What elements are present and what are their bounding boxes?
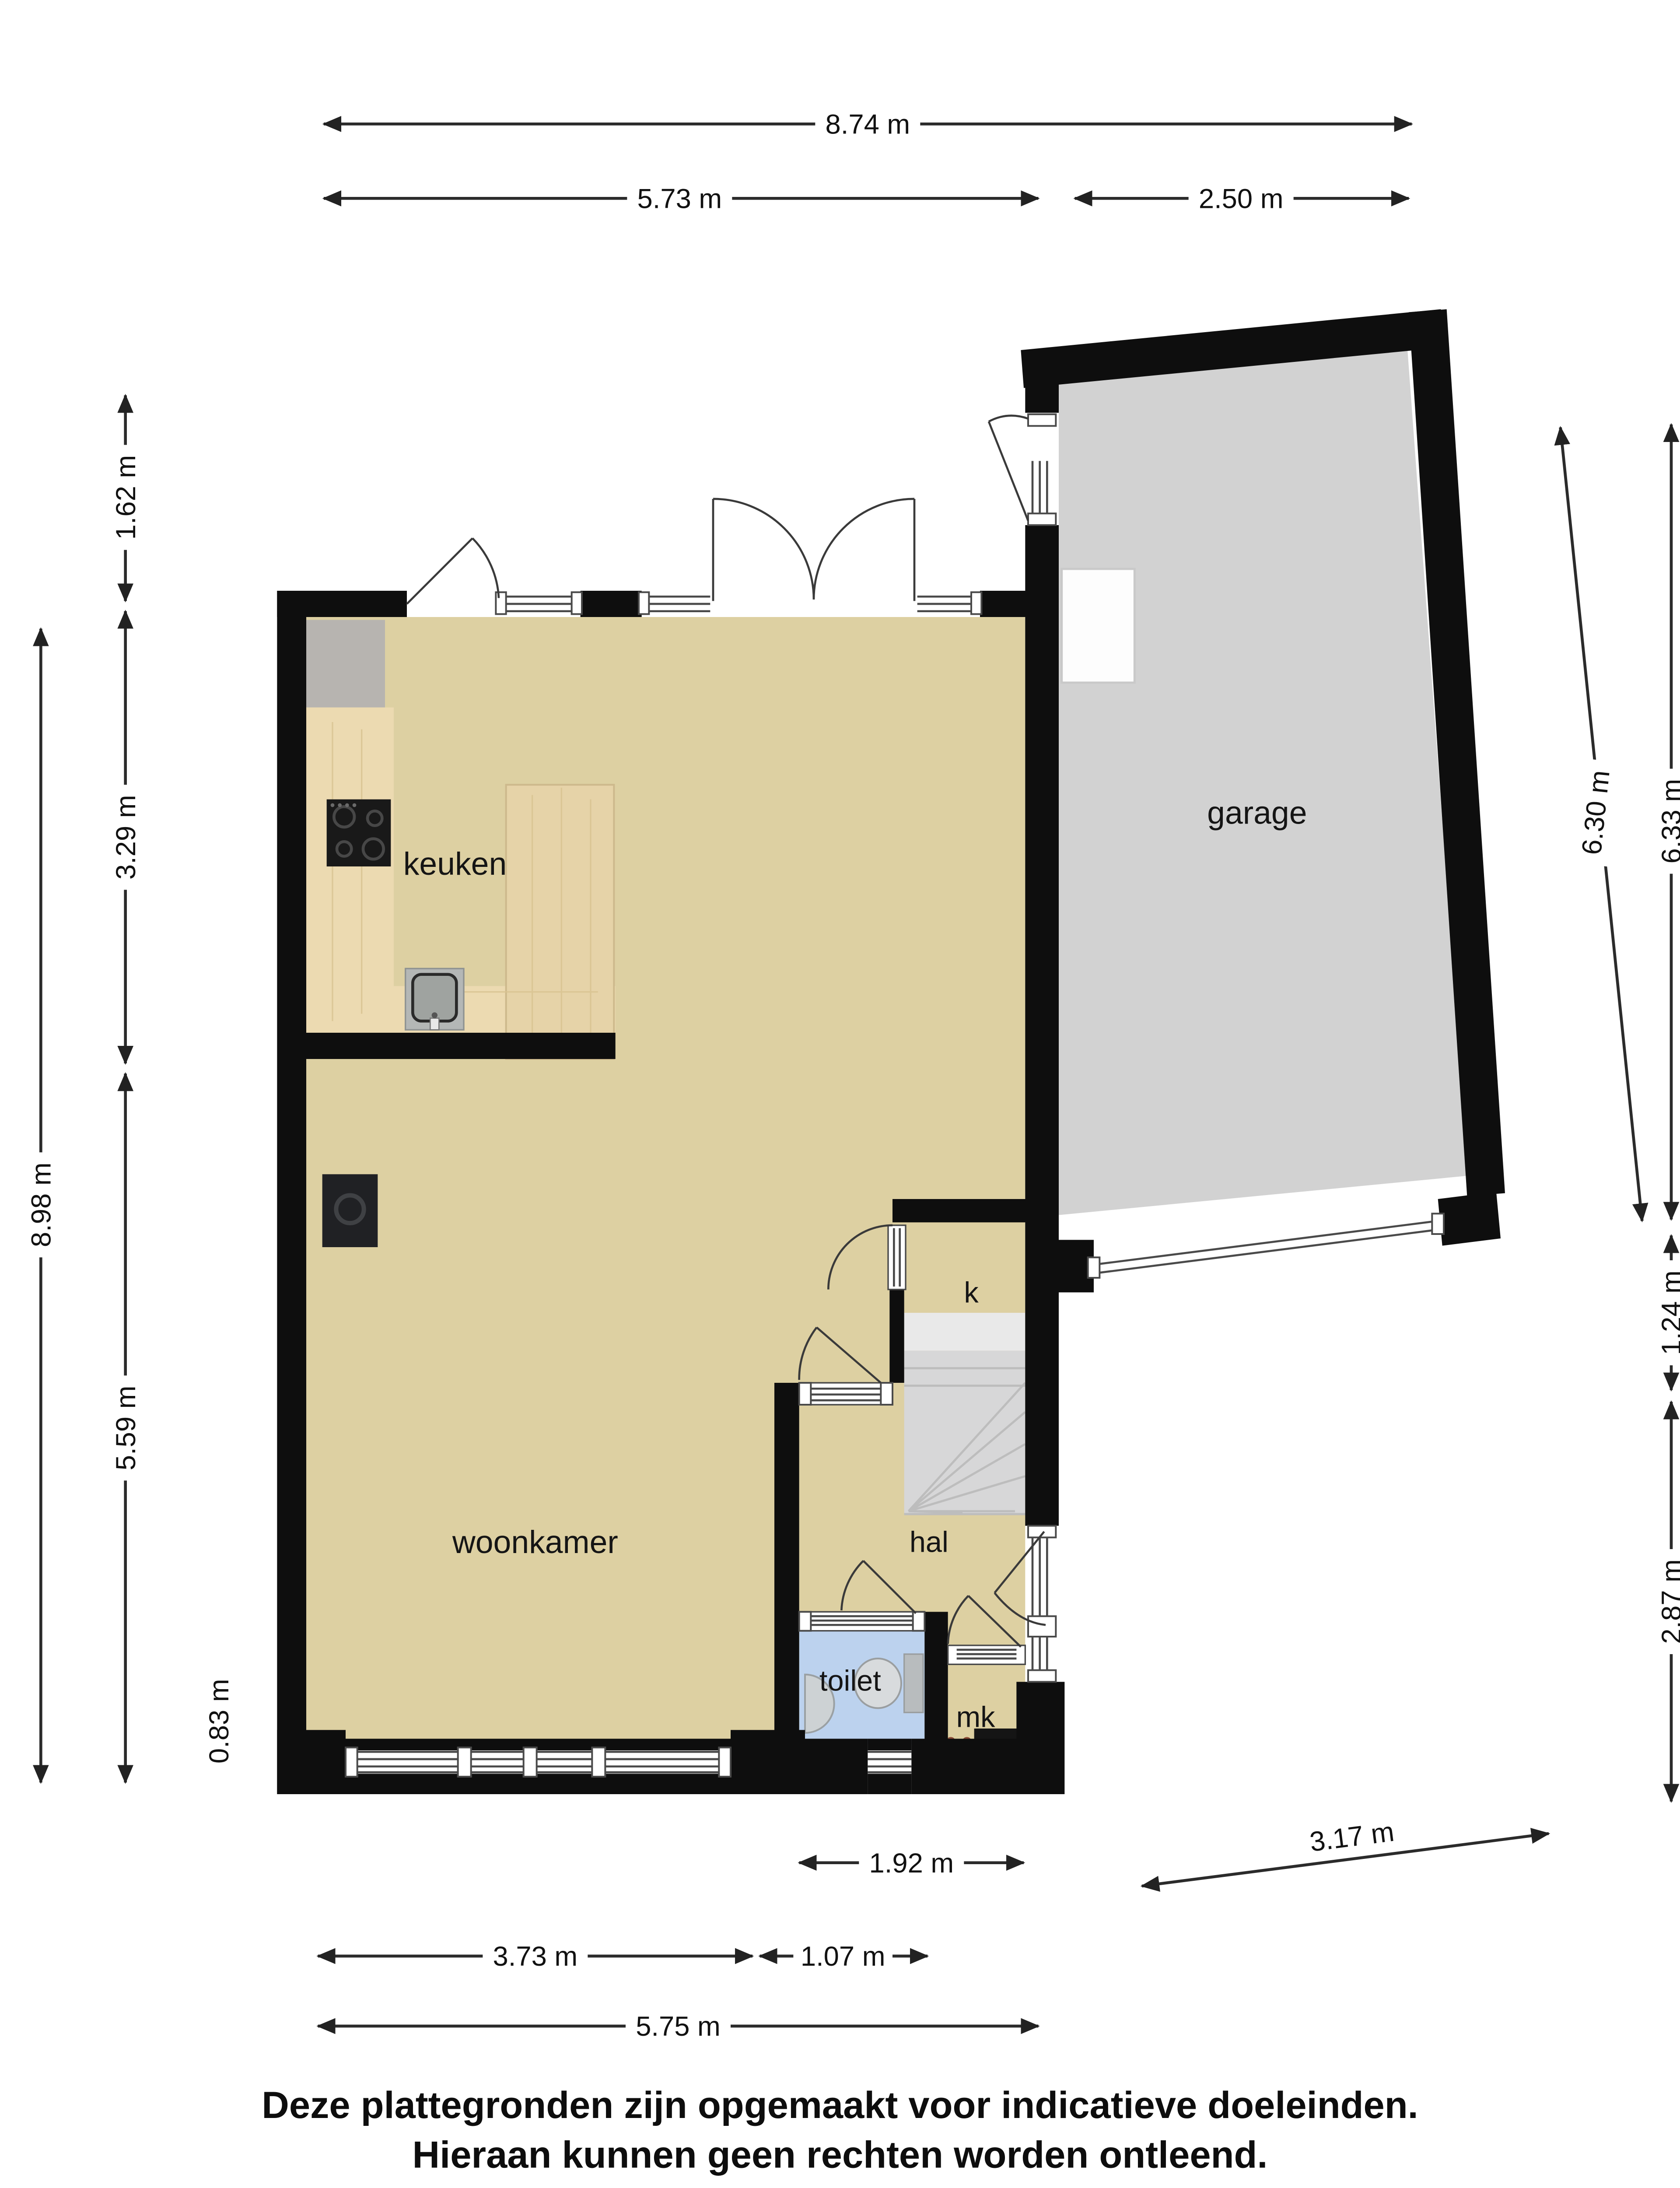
fridge [306, 620, 385, 708]
svg-text:2.50 m: 2.50 m [1199, 184, 1284, 214]
wall-garage-pier-left [1044, 1240, 1094, 1292]
wall-kitchen-divider [303, 1033, 615, 1059]
svg-text:8.98 m: 8.98 m [26, 1163, 56, 1248]
room-label-hal: hal [910, 1526, 948, 1559]
room-label-toilet: toilet [819, 1665, 881, 1697]
wall-bottom-c [805, 1739, 868, 1794]
wall-bottom-toiletwin-top [868, 1739, 911, 1750]
dim-bottom-small: 1.07 m [793, 1939, 892, 1974]
dim-bottom-total: 5.75 m [626, 2009, 731, 2044]
kitchen-counter-left [306, 708, 394, 1033]
wall-bottom-toiletwin-bottom [868, 1774, 911, 1794]
dim-left-small: 0.83 m [204, 1679, 234, 1764]
window-stair-left [888, 1225, 906, 1290]
dim-top-house: 5.73 m [627, 181, 732, 216]
svg-text:5.75 m: 5.75 m [636, 2011, 721, 2042]
wall-stair-left [889, 1290, 904, 1383]
wall-bottom-window-top [346, 1739, 731, 1750]
svg-text:1.07 m: 1.07 m [801, 1941, 885, 1972]
dim-right-front: 2.87 m [1654, 1549, 1680, 1654]
staircase [904, 1313, 1025, 1514]
svg-text:1.24 m: 1.24 m [1656, 1270, 1680, 1355]
wall-top-pier [581, 591, 642, 617]
floorplan-canvas: 8.74 m 5.73 m 2.50 m 1.62 m 3.29 m 5.59 … [0, 0, 1680, 2188]
svg-text:5.73 m: 5.73 m [637, 184, 722, 214]
window-hall-partition [799, 1383, 892, 1405]
dim-right-garage: 6.33 m [1654, 769, 1680, 874]
dim-bottom-living: 3.73 m [483, 1939, 588, 1974]
dim-top-garage: 2.50 m [1189, 181, 1294, 216]
svg-text:5.59 m: 5.59 m [111, 1386, 141, 1471]
room-label-woonkamer: woonkamer [452, 1524, 618, 1560]
stove-icon [327, 799, 391, 866]
wall-toilet-mk [924, 1612, 948, 1750]
room-label-garage: garage [1207, 795, 1307, 831]
wall-bottom-window-bottom [346, 1774, 731, 1794]
svg-text:1.92 m: 1.92 m [869, 1848, 954, 1879]
wall-living-hall [774, 1383, 799, 1742]
dim-left-upper: 1.62 m [108, 445, 143, 550]
disclaimer-line2: Hieraan kunnen geen rechten worden ontle… [413, 2134, 1268, 2176]
wall-right-mid [1025, 525, 1059, 1526]
sink-icon [406, 968, 464, 1030]
floorplan-page: 8.74 m 5.73 m 2.50 m 1.62 m 3.29 m 5.59 … [0, 0, 1680, 2188]
fireplace-icon [322, 1174, 378, 1247]
room-label-k: k [964, 1277, 979, 1309]
svg-text:8.74 m: 8.74 m [826, 109, 910, 140]
wall-bottom-corner-left [277, 1730, 346, 1794]
dim-bottom-toilet: 1.92 m [859, 1845, 964, 1880]
stair-landing [904, 1313, 1025, 1351]
stair-steps [904, 1351, 1025, 1514]
dim-left-living: 5.59 m [108, 1375, 143, 1480]
room-label-mk: mk [956, 1701, 996, 1734]
window-mk-partition [948, 1645, 1025, 1664]
wall-garage-pier-right [1438, 1192, 1501, 1245]
dim-top-total: 8.74 m [815, 106, 920, 141]
svg-text:2.87 m: 2.87 m [1656, 1559, 1680, 1644]
svg-text:3.29 m: 3.29 m [111, 795, 141, 880]
wall-top-a [277, 591, 407, 617]
svg-text:6.33 m: 6.33 m [1656, 779, 1680, 864]
window-toilet-partition [799, 1612, 925, 1630]
room-label-keuken: keuken [403, 846, 507, 882]
garage-niche [1062, 569, 1135, 683]
house-floor [306, 617, 1025, 1742]
dim-left-total: 8.98 m [23, 1152, 58, 1257]
garage-floor [1059, 347, 1469, 1215]
wall-left [277, 591, 306, 1794]
dim-right-small: 1.24 m [1654, 1260, 1680, 1365]
dim-left-kitchen: 3.29 m [108, 785, 143, 890]
svg-text:0.83 m: 0.83 m [204, 1679, 234, 1764]
disclaimer-line1: Deze plattegronden zijn opgemaakt voor i… [262, 2084, 1418, 2126]
svg-text:3.73 m: 3.73 m [493, 1941, 578, 1972]
kitchen-cabinet-block [506, 785, 614, 1059]
svg-text:1.62 m: 1.62 m [111, 455, 141, 540]
wall-stair-top [892, 1199, 1059, 1222]
